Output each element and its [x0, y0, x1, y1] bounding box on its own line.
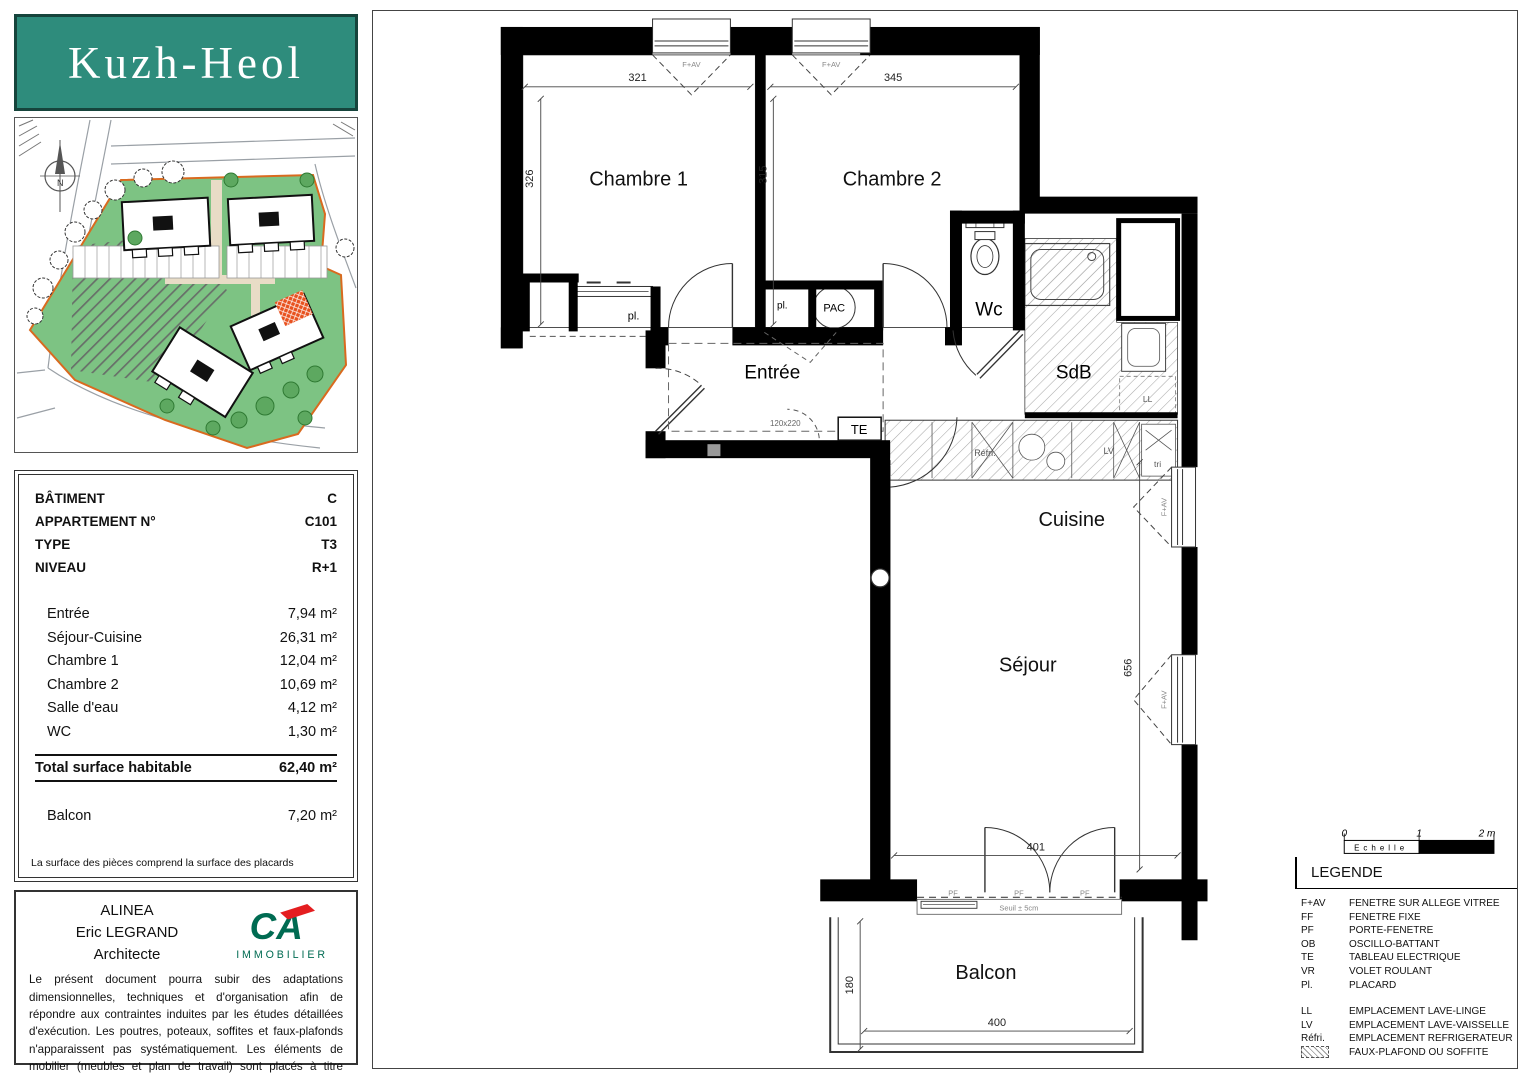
dim-balcony-width: 400 — [988, 1017, 1006, 1029]
room-label-sdb: SdB — [1056, 362, 1092, 383]
area-value: 7,94 m² — [288, 603, 337, 627]
dim-balcony-depth: 180 — [844, 976, 856, 994]
legend-row: F+AV FENETRE SUR ALLEGE VITREE — [1301, 897, 1517, 911]
area-label: Séjour-Cuisine — [47, 627, 142, 651]
dim-ch2-height: 315 — [757, 166, 769, 184]
info-label: NIVEAU — [35, 556, 86, 579]
legend-row: LV EMPLACEMENT LAVE-VAISSELLE — [1301, 1019, 1517, 1033]
info-row-type: TYPE T3 — [35, 533, 337, 556]
legend-row: OB OSCILLO-BATTANT — [1301, 938, 1517, 952]
balcony-area-row: Balcon 7,20 m² — [35, 808, 337, 824]
closet-label-1: pl. — [628, 310, 640, 322]
legend-desc: FENETRE SUR ALLEGE VITREE — [1349, 897, 1500, 911]
area-label: Salle d'eau — [47, 697, 118, 721]
info-value: C — [327, 487, 337, 510]
area-row: Salle d'eau 4,12 m² — [35, 697, 337, 721]
architect-role: Architecte — [29, 944, 225, 966]
area-row: Chambre 1 12,04 m² — [35, 650, 337, 674]
window-top-1 — [653, 19, 731, 95]
info-row-batiment: BÂTIMENT C — [35, 487, 337, 510]
area-value: 4,12 m² — [288, 697, 337, 721]
tri-label: tri — [1154, 459, 1161, 469]
window-top-2 — [792, 19, 870, 95]
area-value: 26,31 m² — [280, 627, 337, 651]
legend-row: Pl. PLACARD — [1301, 979, 1517, 993]
legend-desc: EMPLACEMENT REFRIGERATEUR — [1349, 1032, 1513, 1046]
door-wc-sdb — [953, 330, 1023, 378]
legend-abbr: Réfri. — [1301, 1032, 1349, 1046]
balcony-value: 7,20 m² — [288, 808, 337, 824]
room-label-balcon: Balcon — [955, 962, 1016, 984]
legend-desc: VOLET ROULANT — [1349, 965, 1432, 979]
door-entrance — [656, 368, 705, 434]
compass-north-label: N — [57, 178, 64, 188]
legend-desc: PORTE-FENETRE — [1349, 924, 1433, 938]
site-plan-drawing: N — [15, 118, 357, 452]
legend-row: LL EMPLACEMENT LAVE-LINGE — [1301, 1005, 1517, 1019]
dishwasher-label: LV — [1104, 446, 1114, 456]
floor-plan-document: Kuzh-Heol — [0, 0, 1528, 1079]
area-row: Chambre 2 10,69 m² — [35, 674, 337, 698]
legend: LEGENDE F+AV FENETRE SUR ALLEGE VITREE F… — [1295, 857, 1517, 1063]
area-row: Séjour-Cuisine 26,31 m² — [35, 627, 337, 651]
legend-abbr: LL — [1301, 1005, 1349, 1019]
door-chambre2 — [883, 264, 947, 328]
area-value: 1,30 m² — [288, 721, 337, 745]
room-label-wc: Wc — [975, 299, 1002, 320]
project-title: Kuzh-Heol — [68, 37, 304, 89]
surface-note: La surface des pièces comprend la surfac… — [31, 857, 294, 869]
door-chambre1 — [669, 264, 733, 328]
scale-bar: 0 1 2 m Echelle — [1341, 828, 1495, 853]
agency-name: ALINEA — [29, 900, 225, 922]
legend-abbr: VR — [1301, 965, 1349, 979]
scale-2: 2 m — [1478, 828, 1496, 839]
info-value: R+1 — [312, 556, 337, 579]
washer-label: LL — [1143, 394, 1153, 404]
area-label: WC — [47, 721, 71, 745]
column — [871, 569, 889, 587]
room-label-sejour: Séjour — [999, 655, 1057, 677]
pf-label-1: PF — [948, 888, 958, 897]
scale-label: Echelle — [1354, 843, 1408, 852]
pac-label: PAC — [823, 302, 845, 314]
fridge-label: Réfri. — [974, 448, 995, 458]
ca-immobilier-logo: CA IMMOBILIER — [225, 902, 343, 964]
window-fav-label-1: F+AV — [682, 60, 700, 69]
dim-sejour-height: 656 — [1123, 659, 1135, 677]
legend-desc: FAUX-PLAFOND OU SOFFITE — [1349, 1046, 1488, 1063]
legend-row: VR VOLET ROULANT — [1301, 965, 1517, 979]
window-fav-label-3: F+AV — [1160, 498, 1169, 516]
architect-names: ALINEA Eric LEGRAND Architecte — [29, 900, 225, 965]
architect-block: ALINEA Eric LEGRAND Architecte CA IMMOBI… — [14, 890, 358, 1065]
disclaimer-text: Le présent document pourra subir des ada… — [29, 971, 343, 1079]
legend-title: LEGENDE — [1295, 857, 1517, 889]
legend-desc: TABLEAU ELECTRIQUE — [1349, 951, 1461, 965]
dim-bay-width: 401 — [1027, 841, 1045, 853]
room-label-chambre2: Chambre 2 — [843, 169, 942, 191]
legend-abbr: TE — [1301, 951, 1349, 965]
area-label: Entrée — [47, 603, 90, 627]
legend-desc: EMPLACEMENT LAVE-LINGE — [1349, 1005, 1486, 1019]
room-label-chambre1: Chambre 1 — [589, 169, 688, 191]
architect-name: Eric LEGRAND — [29, 922, 225, 944]
area-label: Chambre 2 — [47, 674, 119, 698]
legend-desc: PLACARD — [1349, 979, 1396, 993]
area-row: WC 1,30 m² — [35, 721, 337, 745]
area-label: Chambre 1 — [47, 650, 119, 674]
window-fav-label-4: F+AV — [1160, 691, 1169, 709]
total-value: 62,40 m² — [279, 760, 337, 776]
legend-abbr: F+AV — [1301, 897, 1349, 911]
legend-desc: FENETRE FIXE — [1349, 911, 1421, 925]
legend-abbr: FF — [1301, 911, 1349, 925]
legend-abbr: OB — [1301, 938, 1349, 952]
toilet-icon — [966, 217, 1004, 275]
site-plan-map: N — [14, 117, 358, 453]
room-areas-list: Entrée 7,94 m² Séjour-Cuisine 26,31 m² C… — [35, 603, 337, 744]
info-label: APPARTEMENT N° — [35, 510, 156, 533]
area-value: 12,04 m² — [280, 650, 337, 674]
legend-row-soffit: FAUX-PLAFOND OU SOFFITE — [1301, 1046, 1517, 1063]
legend-row: FF FENETRE FIXE — [1301, 911, 1517, 925]
apartment-info-inner: BÂTIMENT C APPARTEMENT N° C101 TYPE T3 N… — [18, 474, 354, 878]
soffit-hatch-icon — [1301, 1046, 1349, 1063]
total-label: Total surface habitable — [35, 760, 192, 776]
legend-abbr: Pl. — [1301, 979, 1349, 993]
legend-abbr: PF — [1301, 924, 1349, 938]
room-label-entree: Entrée — [744, 362, 800, 383]
te-label: TE — [851, 422, 868, 437]
site-parking — [73, 246, 327, 278]
area-row: Entrée 7,94 m² — [35, 603, 337, 627]
legend-row: TE TABLEAU ELECTRIQUE — [1301, 951, 1517, 965]
total-area-row: Total surface habitable 62,40 m² — [35, 754, 337, 782]
legend-row: PF PORTE-FENETRE — [1301, 924, 1517, 938]
dim-ch2-width: 345 — [884, 72, 902, 84]
architect-header: ALINEA Eric LEGRAND Architecte CA IMMOBI… — [29, 900, 343, 965]
info-row-appartement: APPARTEMENT N° C101 — [35, 510, 337, 533]
pf-label-3: PF — [1080, 888, 1090, 897]
legend-abbr: LV — [1301, 1019, 1349, 1033]
info-value: C101 — [305, 510, 337, 533]
window-fav-label-2: F+AV — [822, 60, 840, 69]
pf-label-2: PF — [1014, 888, 1024, 897]
legend-desc: OSCILLO-BATTANT — [1349, 938, 1440, 952]
legend-desc: EMPLACEMENT LAVE-VAISSELLE — [1349, 1019, 1509, 1033]
passage-size-label: 120x220 — [770, 419, 801, 428]
walls — [501, 27, 1208, 940]
threshold-label: Seuil ± 5cm — [999, 903, 1038, 912]
room-label-cuisine: Cuisine — [1038, 509, 1105, 531]
map-hatch-marks — [19, 120, 355, 156]
dim-ch1-width: 321 — [628, 72, 646, 84]
area-value: 10,69 m² — [280, 674, 337, 698]
balcony-label: Balcon — [47, 808, 91, 824]
legend-row: Réfri. EMPLACEMENT REFRIGERATEUR — [1301, 1032, 1517, 1046]
floor-plan-panel: Chambre 1 Chambre 2 Entrée Wc SdB Cuisin… — [372, 10, 1518, 1069]
project-logo: Kuzh-Heol — [14, 14, 358, 111]
closet-label-2: pl. — [777, 300, 788, 311]
apartment-info-table: BÂTIMENT C APPARTEMENT N° C101 TYPE T3 N… — [14, 470, 358, 882]
legend-items: F+AV FENETRE SUR ALLEGE VITREE FF FENETR… — [1295, 897, 1517, 1063]
info-label: TYPE — [35, 533, 70, 556]
info-value: T3 — [321, 533, 337, 556]
ca-logo-brand: IMMOBILIER — [236, 949, 328, 961]
door-balcony-double — [985, 827, 1115, 892]
info-row-niveau: NIVEAU R+1 — [35, 556, 337, 579]
duct-shaft — [1119, 221, 1178, 319]
info-label: BÂTIMENT — [35, 487, 105, 510]
wall-infill — [707, 444, 720, 456]
dim-ch1-height: 326 — [524, 170, 536, 188]
